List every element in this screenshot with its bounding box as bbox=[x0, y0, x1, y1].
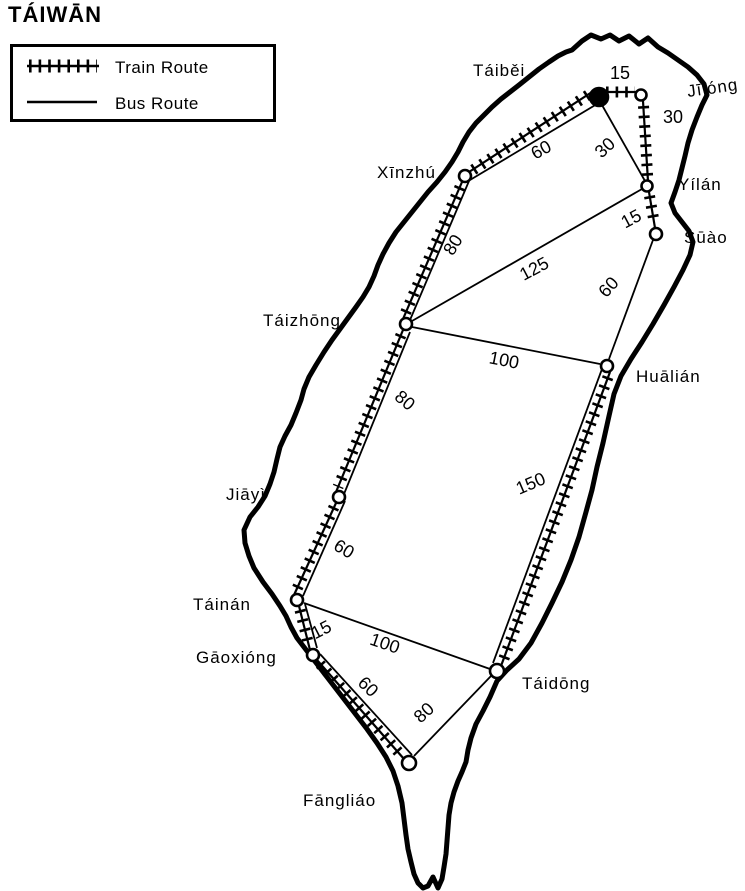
city-label-yilan: Yílán bbox=[678, 175, 722, 194]
city-node-taidong bbox=[490, 664, 504, 678]
city-label-taibei: Táiběi bbox=[473, 61, 525, 80]
route-time-labels: 15 30 15 30 60 80 125 100 60 150 80 60 1… bbox=[308, 63, 683, 727]
city-label-fangliao: Fāngliáo bbox=[303, 791, 376, 810]
time-xinzhu-taizhong: 80 bbox=[439, 231, 467, 259]
train-route-hualian-taidong bbox=[501, 372, 610, 666]
city-label-xinzhu: Xīnzhú bbox=[377, 163, 436, 182]
city-label-tainan: Táinán bbox=[193, 595, 251, 614]
time-suao-hualian: 60 bbox=[594, 273, 622, 301]
city-node-fangliao bbox=[402, 756, 416, 770]
city-node-taizhong bbox=[400, 318, 412, 330]
city-label-jiayi: Jiāyì bbox=[226, 485, 266, 504]
time-taizhong-hualian: 100 bbox=[487, 347, 520, 372]
city-node-xinzhu bbox=[459, 170, 471, 182]
map-svg: Táiběi Jīlóng Yílán Sūào Xīnzhú Táizhōng… bbox=[0, 0, 745, 891]
time-yilan-suao: 15 bbox=[618, 205, 645, 232]
bus-route-suao-hualian bbox=[609, 240, 653, 359]
city-node-hualian bbox=[601, 360, 613, 372]
bus-route-taizhong-yilan bbox=[412, 189, 642, 321]
time-fangliao-taidong: 80 bbox=[410, 698, 438, 726]
city-label-suao: Sūào bbox=[684, 228, 728, 247]
city-label-jilong: Jīlóng bbox=[686, 75, 740, 101]
time-jilong-yilan: 30 bbox=[663, 107, 683, 127]
taiwan-coastline bbox=[244, 35, 707, 888]
train-route-yilan-suao bbox=[649, 192, 655, 228]
bus-route-gaoxiong-fangliao bbox=[320, 654, 412, 755]
city-node-jilong bbox=[636, 90, 647, 101]
train-route-jilong-yilan bbox=[643, 101, 648, 181]
train-routes bbox=[294, 92, 655, 759]
taiwan-route-map: TÁIWĀN Train Route Bus Route bbox=[0, 0, 745, 891]
time-taibei-jilong: 15 bbox=[610, 63, 630, 83]
city-node-yilan bbox=[642, 181, 653, 192]
train-route-gaoxiong-fangliao bbox=[317, 660, 404, 759]
city-label-gaoxiong: Gāoxióng bbox=[196, 648, 277, 667]
time-hualian-taidong: 150 bbox=[513, 468, 548, 498]
time-taibei-xinzhu: 60 bbox=[527, 136, 554, 163]
city-node-taibei bbox=[590, 88, 608, 106]
city-label-taizhong: Táizhōng bbox=[263, 311, 341, 330]
city-node-tainan bbox=[291, 594, 303, 606]
time-taizhong-jiayi: 80 bbox=[391, 386, 419, 414]
time-taibei-yilan: 30 bbox=[591, 133, 619, 161]
train-route-taizhong-jiayi bbox=[336, 330, 403, 492]
time-jiayi-tainan: 60 bbox=[330, 535, 357, 562]
bus-route-taizhong-jiayi bbox=[344, 332, 410, 494]
city-label-hualian: Huālián bbox=[636, 367, 701, 386]
bus-routes bbox=[303, 104, 653, 756]
city-label-taidong: Táidōng bbox=[522, 674, 590, 693]
time-tainan-taidong: 100 bbox=[367, 629, 402, 658]
train-route-jiayi-tainan bbox=[294, 503, 336, 595]
city-node-suao bbox=[650, 228, 662, 240]
train-route-taibei-xinzhu bbox=[469, 92, 592, 172]
city-node-gaoxiong bbox=[307, 649, 319, 661]
city-node-jiayi bbox=[333, 491, 345, 503]
